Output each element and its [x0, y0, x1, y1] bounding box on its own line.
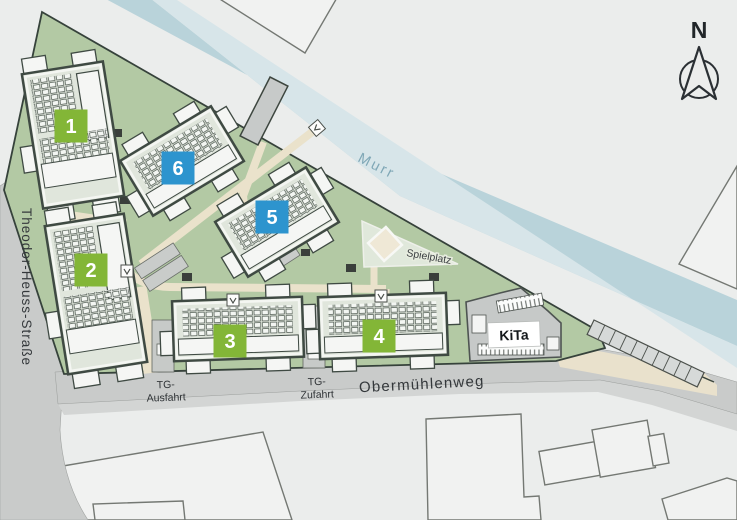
building-badge-6[interactable]: 6 [162, 152, 195, 185]
building-badge-1[interactable]: 1 [55, 110, 88, 143]
kita-label: KiTa [499, 326, 529, 343]
building-badge-3[interactable]: 3 [214, 325, 247, 358]
svg-text:TG-: TG- [157, 379, 176, 392]
north-label: N [691, 17, 708, 43]
building-number-4: 4 [373, 326, 385, 348]
building-number-3: 3 [224, 331, 235, 353]
building-number-1: 1 [65, 116, 76, 138]
site-plan-canvas: KiTa 123456 Murr Theodor-Heuss-Straße Ob… [0, 0, 737, 520]
building-badge-4[interactable]: 4 [363, 320, 396, 353]
svg-text:Ausfahrt: Ausfahrt [146, 391, 186, 404]
building-badge-2[interactable]: 2 [75, 254, 108, 287]
entrance-marker-icon [121, 265, 133, 277]
building-number-5: 5 [266, 207, 277, 229]
svg-text:Zufahrt: Zufahrt [300, 388, 334, 401]
building-number-2: 2 [85, 260, 96, 282]
svg-text:TG-: TG- [308, 376, 327, 389]
building-number-6: 6 [172, 158, 183, 180]
entrance-marker-icon [375, 290, 387, 302]
site-plan-map: KiTa 123456 Murr Theodor-Heuss-Straße Ob… [0, 0, 737, 520]
entrance-marker-icon [227, 294, 239, 306]
street-label-theodor-heuss: Theodor-Heuss-Straße [19, 208, 34, 366]
building-badge-5[interactable]: 5 [256, 201, 289, 234]
